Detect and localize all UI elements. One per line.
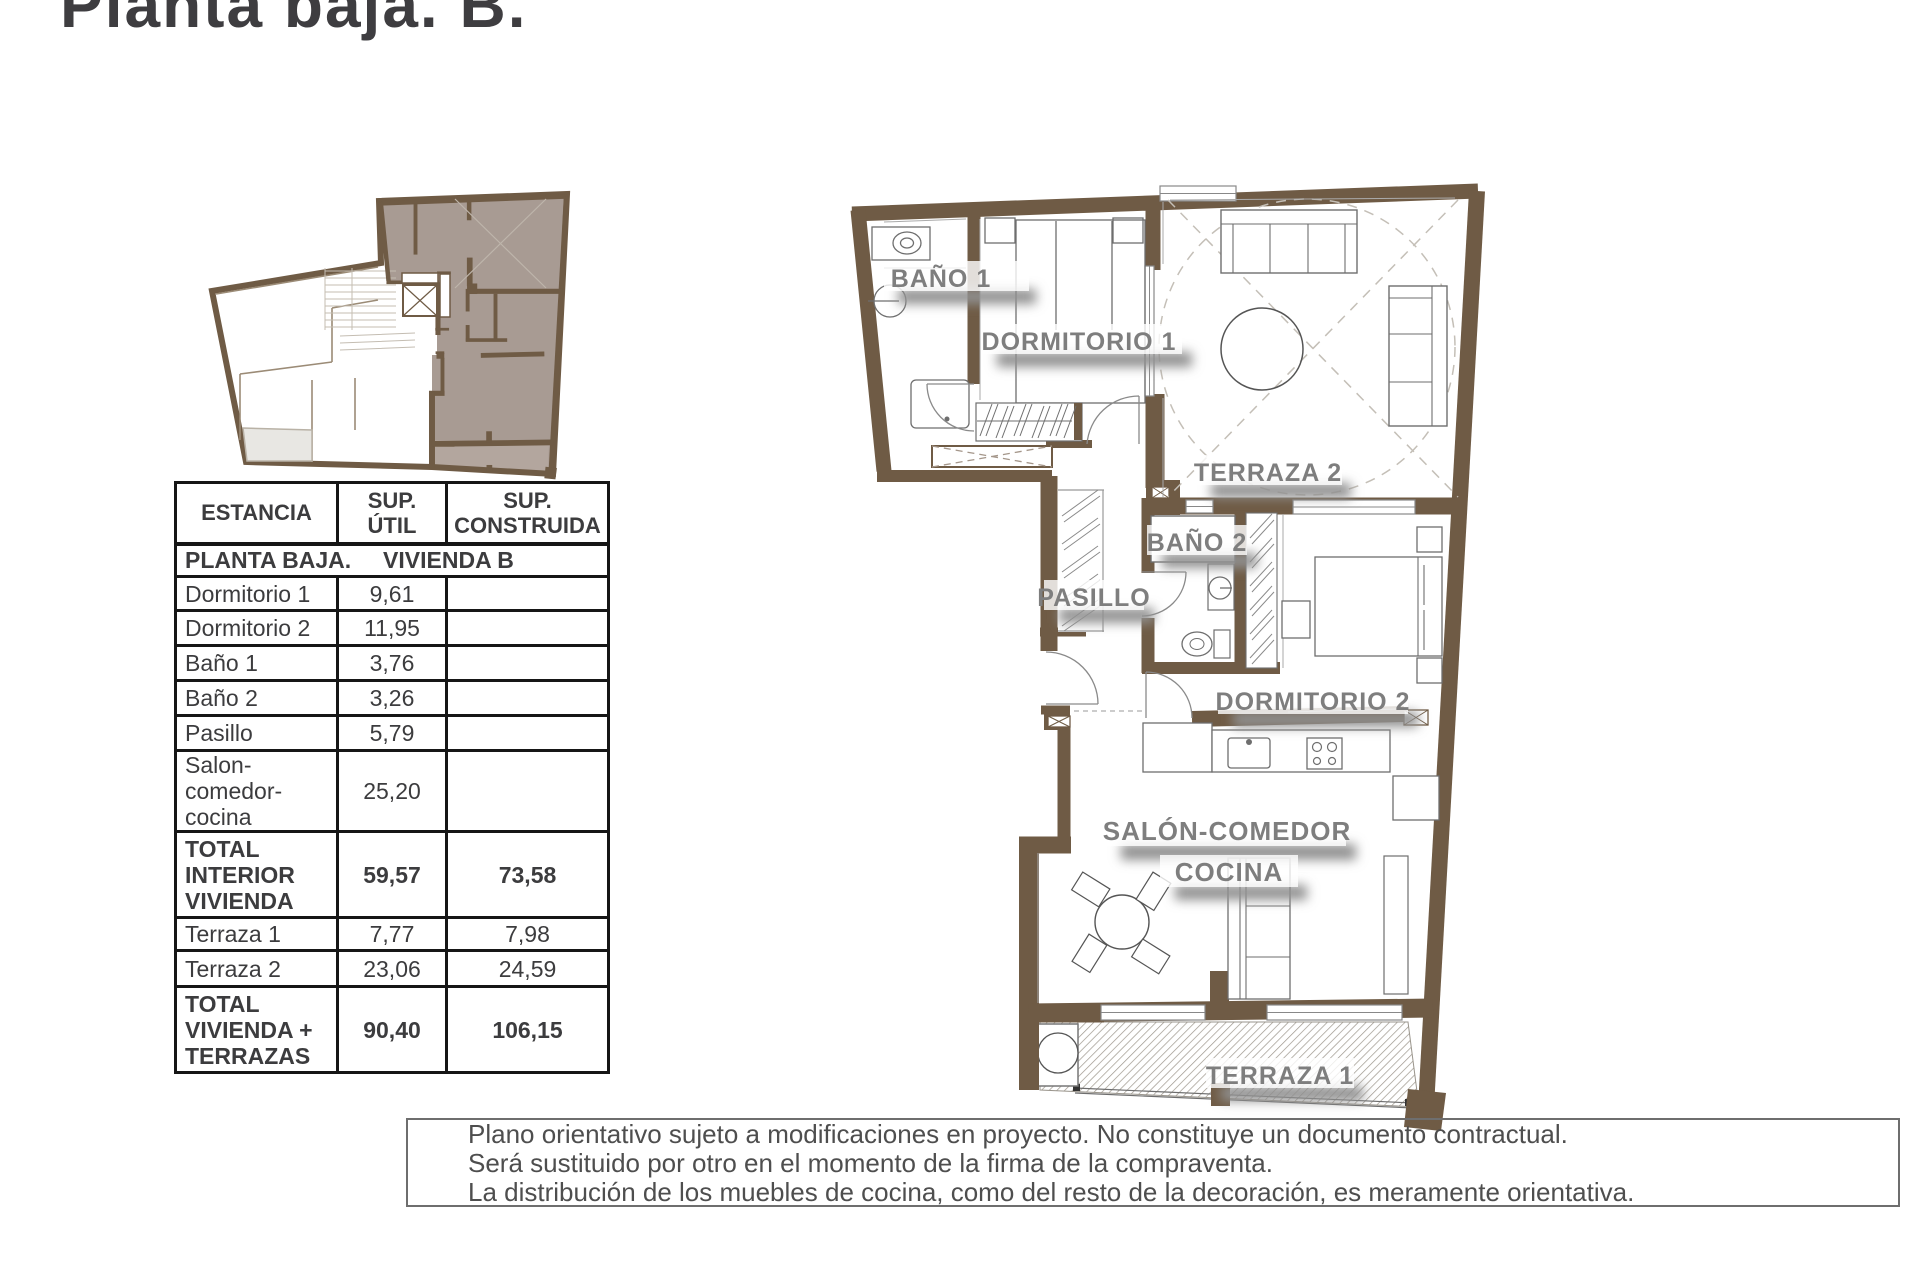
svg-text:TERRAZA 1: TERRAZA 1 (1206, 1062, 1354, 1090)
svg-text:BAÑO 1: BAÑO 1 (891, 263, 991, 293)
svg-text:DORMITORIO 1: DORMITORIO 1 (982, 328, 1177, 356)
svg-text:PASILLO: PASILLO (1037, 584, 1150, 612)
svg-text:BAÑO 2: BAÑO 2 (1147, 527, 1247, 557)
svg-text:COCINA: COCINA (1175, 857, 1284, 887)
svg-text:SALÓN-COMEDOR: SALÓN-COMEDOR (1103, 816, 1351, 846)
svg-text:TERRAZA 2: TERRAZA 2 (1194, 459, 1342, 487)
svg-text:DORMITORIO 2: DORMITORIO 2 (1216, 688, 1411, 716)
